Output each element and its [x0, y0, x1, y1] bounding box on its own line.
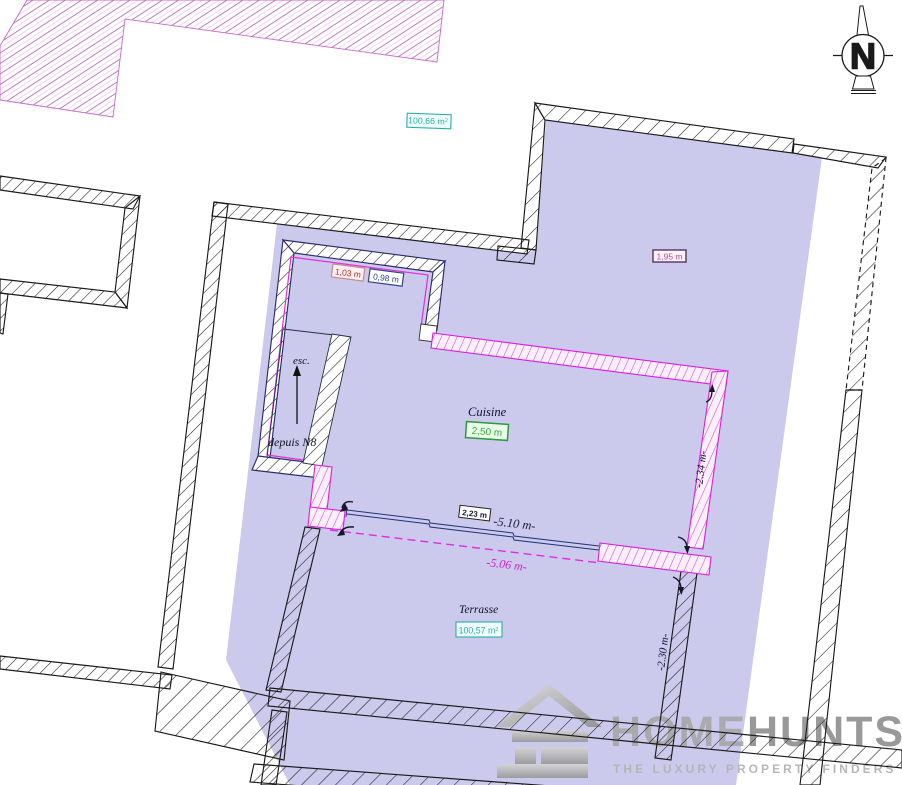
svg-text:THE LUXURY PROPERTY FINDERS: THE LUXURY PROPERTY FINDERS — [613, 762, 897, 776]
svg-text:depuis N8: depuis N8 — [268, 435, 316, 449]
svg-text:1,95 m: 1,95 m — [657, 252, 683, 262]
svg-text:Cuisine: Cuisine — [468, 405, 507, 419]
svg-text:100,66 m2: 100,66 m2 — [408, 115, 448, 126]
svg-text:2,50 m: 2,50 m — [471, 426, 502, 439]
svg-text:N: N — [850, 36, 876, 77]
svg-text:Terrasse: Terrasse — [459, 604, 498, 616]
svg-text:100,57 m2: 100,57 m2 — [459, 626, 499, 636]
svg-text:esc.: esc. — [293, 355, 310, 367]
